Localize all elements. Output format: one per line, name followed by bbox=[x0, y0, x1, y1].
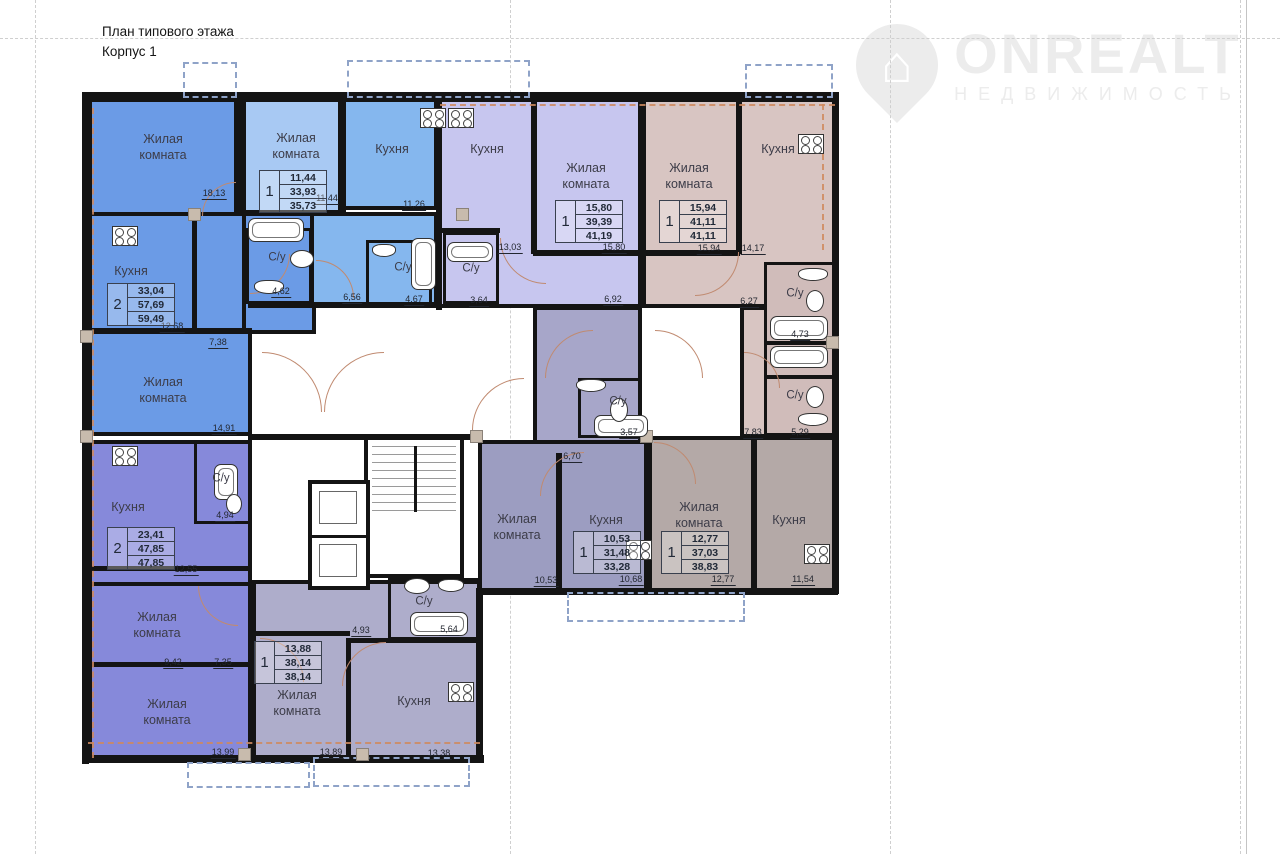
stove-icon bbox=[804, 544, 830, 564]
axis-line bbox=[88, 742, 480, 744]
door-arc bbox=[472, 378, 524, 430]
grid-line bbox=[0, 38, 1280, 39]
apartment-area-value: 33,93 bbox=[280, 184, 326, 198]
apartment-area-value: 41,11 bbox=[680, 214, 726, 228]
room-label: Кухня bbox=[772, 512, 805, 528]
room-label: С/у bbox=[415, 595, 432, 610]
room-label: Жилая комната bbox=[562, 160, 609, 193]
dimension-label: 3,57 bbox=[619, 428, 639, 439]
room-label: Жилая комната bbox=[139, 374, 186, 407]
dimension-label: 6,92 bbox=[603, 295, 623, 306]
plan-title: План типового этажа Корпус 1 bbox=[102, 22, 234, 63]
area-stamp: 115,8039,3941,19 bbox=[555, 200, 623, 243]
wall-segment bbox=[751, 436, 757, 592]
apartment-area-value: 57,69 bbox=[128, 297, 174, 311]
wall-segment bbox=[438, 228, 500, 233]
dimension-label: 11,26 bbox=[402, 200, 426, 211]
toilet-icon bbox=[798, 413, 828, 426]
grid-line bbox=[1240, 0, 1241, 854]
apartment-area-value: 38,83 bbox=[682, 559, 728, 573]
stove-burner bbox=[115, 448, 124, 457]
elevator-divider bbox=[312, 535, 366, 538]
bathtub-icon bbox=[248, 218, 304, 242]
apartment-areas: 11,4433,9335,73 bbox=[280, 171, 326, 212]
apartment-area-value: 10,53 bbox=[594, 532, 640, 545]
stove-icon bbox=[448, 682, 474, 702]
apartment-areas: 23,4147,8547,85 bbox=[128, 528, 174, 569]
dimension-label: 13,99 bbox=[211, 748, 236, 759]
stove-burner bbox=[127, 228, 136, 237]
bathtub-icon bbox=[770, 346, 828, 368]
dimension-label: 7,38 bbox=[208, 338, 228, 349]
apartment-area-value: 38,14 bbox=[275, 669, 321, 683]
room-label: Кухня bbox=[470, 141, 503, 157]
dimension-label: 7,83 bbox=[743, 428, 763, 439]
apartment-area-value: 11,44 bbox=[280, 171, 326, 184]
stove-burner bbox=[819, 546, 828, 555]
dimension-label: 4,67 bbox=[404, 295, 424, 306]
plan-title-line1: План типового этажа bbox=[102, 22, 234, 42]
balcony-outline bbox=[183, 62, 237, 98]
dimension-label: 10,53 bbox=[534, 576, 559, 587]
stove-burner bbox=[801, 136, 810, 145]
dimension-label: 6,70 bbox=[562, 452, 582, 463]
dimension-label: 7,35 bbox=[213, 658, 233, 669]
stove-burner bbox=[463, 684, 472, 693]
stove-burner bbox=[423, 110, 432, 119]
stove-icon bbox=[448, 108, 474, 128]
dimension-label: 12,77 bbox=[711, 575, 736, 586]
toilet-icon bbox=[372, 244, 396, 257]
stairwell bbox=[364, 436, 464, 578]
stove-burner bbox=[819, 555, 828, 564]
stove-burner bbox=[127, 448, 136, 457]
dimension-label: 9,42 bbox=[163, 658, 183, 669]
apartment-room-count: 2 bbox=[108, 528, 128, 569]
stove-burner bbox=[807, 546, 816, 555]
balcony-outline bbox=[347, 60, 530, 98]
area-stamp: 112,7737,0338,83 bbox=[661, 531, 729, 574]
dimension-label: 6,27 bbox=[739, 297, 759, 308]
apartment-room-count: 1 bbox=[660, 201, 680, 242]
stove-burner bbox=[801, 145, 810, 154]
sink-icon bbox=[404, 578, 430, 594]
dimension-label: 4,62 bbox=[271, 287, 291, 298]
balcony-outline bbox=[567, 592, 745, 622]
area-stamp: 113,8838,1438,14 bbox=[254, 641, 322, 684]
area-stamp: 115,9441,1141,11 bbox=[659, 200, 727, 243]
wall-segment bbox=[252, 631, 350, 636]
apartment-area-value: 59,49 bbox=[128, 311, 174, 325]
stove-icon bbox=[798, 134, 824, 154]
stove-burner bbox=[463, 119, 472, 128]
stove-burner bbox=[423, 119, 432, 128]
anchor-square bbox=[356, 748, 369, 761]
grid-line bbox=[35, 0, 36, 854]
dimension-label: 18,13 bbox=[202, 189, 227, 200]
bathtub-icon bbox=[411, 238, 436, 290]
stair-divider bbox=[414, 446, 417, 512]
stove-icon bbox=[420, 108, 446, 128]
balcony-outline bbox=[745, 64, 833, 98]
anchor-square bbox=[188, 208, 201, 221]
apartment-areas: 13,8838,1438,14 bbox=[275, 642, 321, 683]
area-stamp: 233,0457,6959,49 bbox=[107, 283, 175, 326]
stove-burner bbox=[115, 228, 124, 237]
anchor-square bbox=[80, 330, 93, 343]
room-label: Кухня bbox=[375, 141, 408, 157]
apartment-area-value: 12,77 bbox=[682, 532, 728, 545]
plan-title-line2: Корпус 1 bbox=[102, 42, 234, 62]
room-label: Кухня bbox=[111, 499, 144, 515]
apartment-areas: 33,0457,6959,49 bbox=[128, 284, 174, 325]
apartment-area-value: 41,11 bbox=[680, 228, 726, 242]
elevator-shaft bbox=[308, 480, 370, 590]
anchor-square bbox=[470, 430, 483, 443]
dimension-label: 11,54 bbox=[791, 575, 815, 586]
room-label: Жилая комната bbox=[272, 130, 319, 163]
stove-burner bbox=[115, 237, 124, 246]
dimension-label: 12,55 bbox=[174, 565, 199, 576]
room-label: С/у bbox=[786, 389, 803, 404]
anchor-square bbox=[238, 748, 251, 761]
dimension-label: 4,94 bbox=[215, 511, 235, 522]
apartment-area-value: 23,41 bbox=[128, 528, 174, 541]
stove-burner bbox=[641, 551, 650, 560]
room-label: Кухня bbox=[114, 263, 147, 279]
apartment-room-count: 1 bbox=[556, 201, 576, 242]
dimension-label: 14,17 bbox=[741, 244, 766, 255]
toilet-icon bbox=[798, 268, 828, 281]
balcony-outline bbox=[313, 757, 470, 787]
door-arc bbox=[262, 352, 322, 412]
stove-burner bbox=[813, 145, 822, 154]
room-label: Жилая комната bbox=[493, 511, 540, 544]
balcony-outline bbox=[187, 762, 310, 788]
stove-burner bbox=[451, 684, 460, 693]
dimension-label: 13,03 bbox=[498, 243, 523, 254]
stove-burner bbox=[807, 555, 816, 564]
dimension-label: 14,91 bbox=[212, 424, 237, 435]
dimension-label: 6,56 bbox=[342, 293, 362, 304]
wall-segment bbox=[736, 98, 742, 254]
apartment-room-count: 2 bbox=[108, 284, 128, 325]
logo-brand: ONREALT bbox=[954, 26, 1242, 82]
apartment-area-value: 15,94 bbox=[680, 201, 726, 214]
stove-burner bbox=[451, 119, 460, 128]
house-icon: ⌂ bbox=[881, 39, 912, 91]
sink-icon bbox=[806, 386, 824, 408]
stove-burner bbox=[451, 110, 460, 119]
dimension-label: 4,93 bbox=[351, 626, 371, 637]
room-label: С/у bbox=[609, 395, 626, 410]
elevator-cabin bbox=[319, 491, 357, 524]
dimension-label: 13,38 bbox=[427, 749, 452, 760]
apartment-area-value: 41,19 bbox=[576, 228, 622, 242]
room-label: Жилая комната bbox=[665, 160, 712, 193]
sink-icon bbox=[806, 290, 824, 312]
toilet-icon bbox=[438, 579, 464, 592]
room-label: С/у bbox=[212, 472, 229, 487]
stove-burner bbox=[463, 110, 472, 119]
anchor-square bbox=[80, 430, 93, 443]
dimension-label: 10,68 bbox=[619, 575, 644, 586]
wall-segment bbox=[476, 588, 483, 763]
apartment-area-value: 37,03 bbox=[682, 545, 728, 559]
room-label: Жилая комната bbox=[675, 499, 722, 532]
stove-burner bbox=[435, 119, 444, 128]
stove-burner bbox=[127, 237, 136, 246]
wall-segment bbox=[192, 212, 197, 332]
apartment-areas: 15,8039,3941,19 bbox=[576, 201, 622, 242]
stove-burner bbox=[463, 693, 472, 702]
room-label: Жилая комната bbox=[133, 609, 180, 642]
stove-burner bbox=[813, 136, 822, 145]
apartment-area-value: 47,85 bbox=[128, 555, 174, 569]
apartment-area-value: 35,73 bbox=[280, 198, 326, 212]
dimension-label: 13,89 bbox=[319, 748, 344, 759]
apartment-area-value: 33,28 bbox=[594, 559, 640, 573]
area-stamp: 111,4433,9335,73 bbox=[259, 170, 327, 213]
apartment-room-count: 1 bbox=[662, 532, 682, 573]
wall-segment bbox=[236, 98, 244, 216]
stove-icon bbox=[112, 226, 138, 246]
apartment-room-count: 1 bbox=[260, 171, 280, 212]
apartment-area-value: 38,14 bbox=[275, 655, 321, 669]
apartment-area-value: 15,80 bbox=[576, 201, 622, 214]
door-arc bbox=[324, 352, 384, 412]
apartment-area-value: 47,85 bbox=[128, 541, 174, 555]
page-edge-line bbox=[1246, 0, 1247, 854]
room-label: С/у bbox=[394, 261, 411, 276]
wall-segment bbox=[640, 98, 646, 308]
dimension-label: 5,29 bbox=[790, 428, 810, 439]
room-label: С/у bbox=[786, 287, 803, 302]
sink-icon bbox=[290, 250, 314, 268]
axis-line bbox=[440, 104, 835, 106]
dimension-label: 5,64 bbox=[439, 625, 459, 636]
apartment-areas: 12,7737,0338,83 bbox=[682, 532, 728, 573]
room-label: С/у bbox=[462, 262, 479, 277]
apartment-areas: 10,5331,4833,28 bbox=[594, 532, 640, 573]
anchor-square bbox=[456, 208, 469, 221]
apartment-room-count: 1 bbox=[255, 642, 275, 683]
wall-segment bbox=[436, 98, 442, 310]
stove-burner bbox=[127, 457, 136, 466]
apartment-area-value: 31,48 bbox=[594, 545, 640, 559]
dimension-label: 15,94 bbox=[697, 244, 722, 255]
room-label: Кухня bbox=[761, 141, 794, 157]
dimension-label: 3,64 bbox=[469, 296, 489, 307]
door-arc bbox=[655, 330, 703, 378]
room-label: Жилая комната bbox=[273, 687, 320, 720]
stove-burner bbox=[115, 457, 124, 466]
stove-burner bbox=[451, 693, 460, 702]
logo-subtitle: НЕДВИЖИМОСТЬ bbox=[954, 84, 1242, 105]
room-label: Жилая комната bbox=[143, 696, 190, 729]
apartment-room-count: 1 bbox=[574, 532, 594, 573]
area-stamp: 110,5331,4833,28 bbox=[573, 531, 641, 574]
room-label: С/у bbox=[268, 251, 285, 266]
axis-line bbox=[822, 104, 824, 250]
stove-icon bbox=[112, 446, 138, 466]
apartment-areas: 15,9441,1141,11 bbox=[680, 201, 726, 242]
room-label: Кухня bbox=[397, 693, 430, 709]
apartment-area-value: 13,88 bbox=[275, 642, 321, 655]
apartment-area-value: 33,04 bbox=[128, 284, 174, 297]
floor-plan-canvas: План типового этажа Корпус 1 ⌂ ONREALT Н… bbox=[0, 0, 1280, 854]
room-label: Жилая комната bbox=[139, 131, 186, 164]
stove-burner bbox=[641, 542, 650, 551]
wall-segment bbox=[348, 638, 482, 643]
toilet-icon bbox=[576, 379, 606, 392]
stove-burner bbox=[435, 110, 444, 119]
area-stamp: 223,4147,8547,85 bbox=[107, 527, 175, 570]
grid-line bbox=[890, 0, 891, 854]
anchor-square bbox=[826, 336, 839, 349]
bathtub-icon bbox=[447, 242, 493, 262]
dimension-label: 4,73 bbox=[790, 330, 810, 341]
wall-segment bbox=[531, 98, 537, 254]
logo: ⌂ ONREALT НЕДВИЖИМОСТЬ bbox=[856, 24, 1242, 106]
logo-pin-icon: ⌂ bbox=[839, 7, 955, 123]
room-label: Кухня bbox=[589, 512, 622, 528]
dimension-label: 15,80 bbox=[602, 243, 627, 254]
elevator-cabin bbox=[319, 544, 357, 577]
apartment-area-value: 39,39 bbox=[576, 214, 622, 228]
